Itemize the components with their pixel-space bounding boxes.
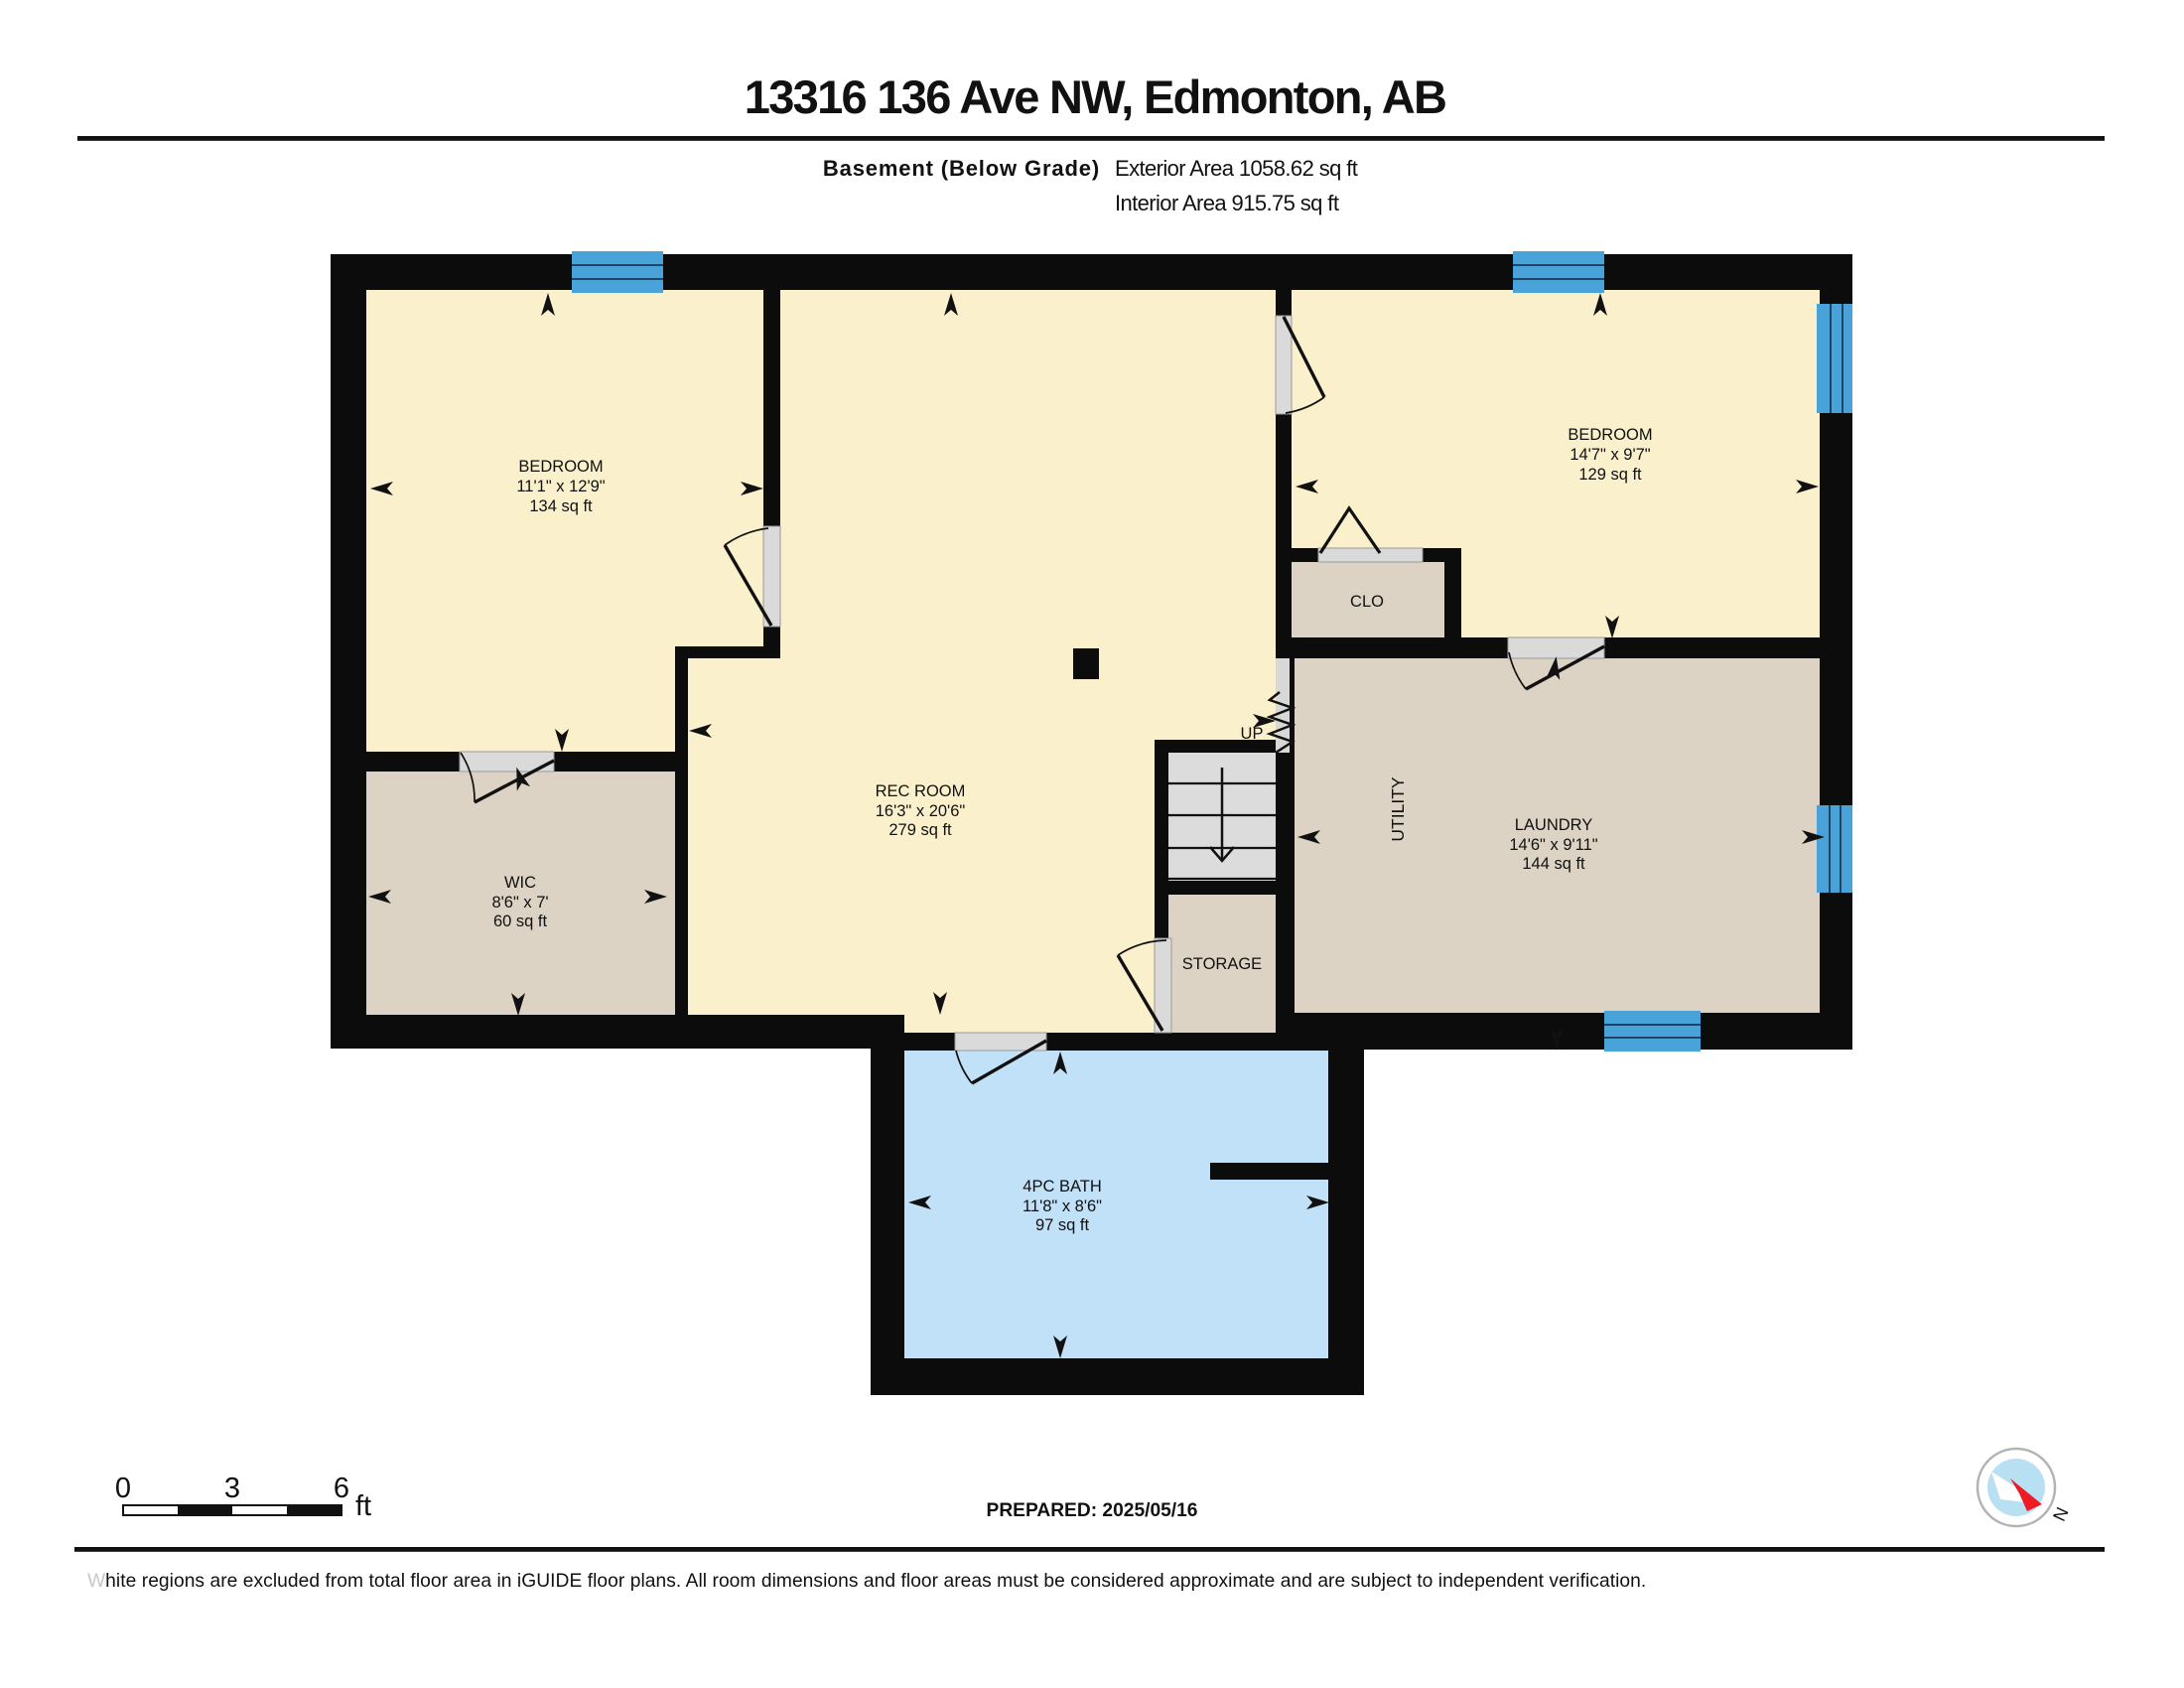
svg-text:UTILITY: UTILITY [1388, 776, 1408, 841]
svg-text:STORAGE: STORAGE [1182, 955, 1262, 973]
svg-text:129 sq ft: 129 sq ft [1578, 466, 1642, 484]
svg-text:134 sq ft: 134 sq ft [529, 497, 593, 515]
svg-text:144 sq ft: 144 sq ft [1522, 855, 1585, 873]
svg-text:4PC BATH: 4PC BATH [1023, 1178, 1101, 1196]
svg-text:LAUNDRY: LAUNDRY [1515, 816, 1593, 834]
svg-text:6: 6 [334, 1473, 349, 1504]
svg-text:11'8" x 8'6": 11'8" x 8'6" [1023, 1197, 1102, 1215]
svg-text:White regions are excluded fro: White regions are excluded from total fl… [87, 1571, 1646, 1592]
svg-text:60 sq ft: 60 sq ft [493, 913, 548, 930]
svg-text:0: 0 [115, 1473, 131, 1504]
svg-text:PREPARED: 2025/05/16: PREPARED: 2025/05/16 [987, 1500, 1198, 1521]
svg-text:16'3" x 20'6": 16'3" x 20'6" [876, 802, 966, 820]
svg-text:3: 3 [224, 1473, 240, 1504]
svg-text:13316 136 Ave NW, Edmonton, AB: 13316 136 Ave NW, Edmonton, AB [745, 70, 1445, 123]
svg-text:Exterior Area 1058.62 sq ft: Exterior Area 1058.62 sq ft [1115, 156, 1358, 181]
svg-text:ft: ft [355, 1490, 371, 1522]
svg-text:279 sq ft: 279 sq ft [888, 821, 952, 839]
svg-text:Interior Area 915.75 sq ft: Interior Area 915.75 sq ft [1115, 191, 1339, 215]
svg-text:14'6" x 9'11": 14'6" x 9'11" [1509, 836, 1597, 854]
svg-text:8'6" x 7': 8'6" x 7' [491, 894, 548, 912]
svg-text:WIC: WIC [504, 874, 536, 892]
svg-text:BEDROOM: BEDROOM [518, 458, 603, 476]
svg-text:BEDROOM: BEDROOM [1568, 426, 1652, 444]
svg-text:Basement (Below Grade): Basement (Below Grade) [823, 156, 1100, 181]
svg-text:14'7" x 9'7": 14'7" x 9'7" [1570, 446, 1650, 464]
svg-text:UP: UP [1241, 725, 1264, 743]
svg-text:CLO: CLO [1350, 593, 1384, 611]
svg-text:11'1" x 12'9": 11'1" x 12'9" [516, 478, 605, 495]
svg-text:REC ROOM: REC ROOM [876, 782, 966, 800]
svg-text:97 sq ft: 97 sq ft [1035, 1216, 1090, 1234]
